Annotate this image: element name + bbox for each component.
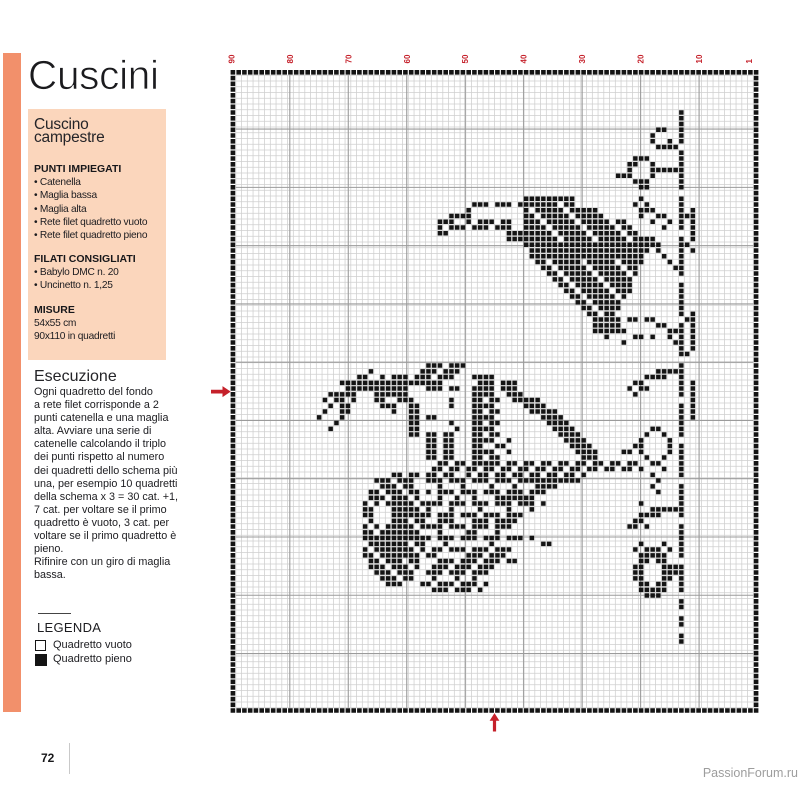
- svg-text:30: 30: [578, 54, 587, 63]
- svg-text:50: 50: [461, 54, 470, 63]
- svg-text:20: 20: [636, 54, 645, 63]
- svg-text:70: 70: [344, 54, 353, 63]
- svg-text:90: 90: [228, 54, 237, 63]
- svg-text:40: 40: [520, 54, 529, 63]
- svg-text:80: 80: [286, 54, 295, 63]
- svg-text:10: 10: [695, 54, 704, 63]
- svg-text:1: 1: [745, 59, 754, 64]
- svg-text:60: 60: [403, 54, 412, 63]
